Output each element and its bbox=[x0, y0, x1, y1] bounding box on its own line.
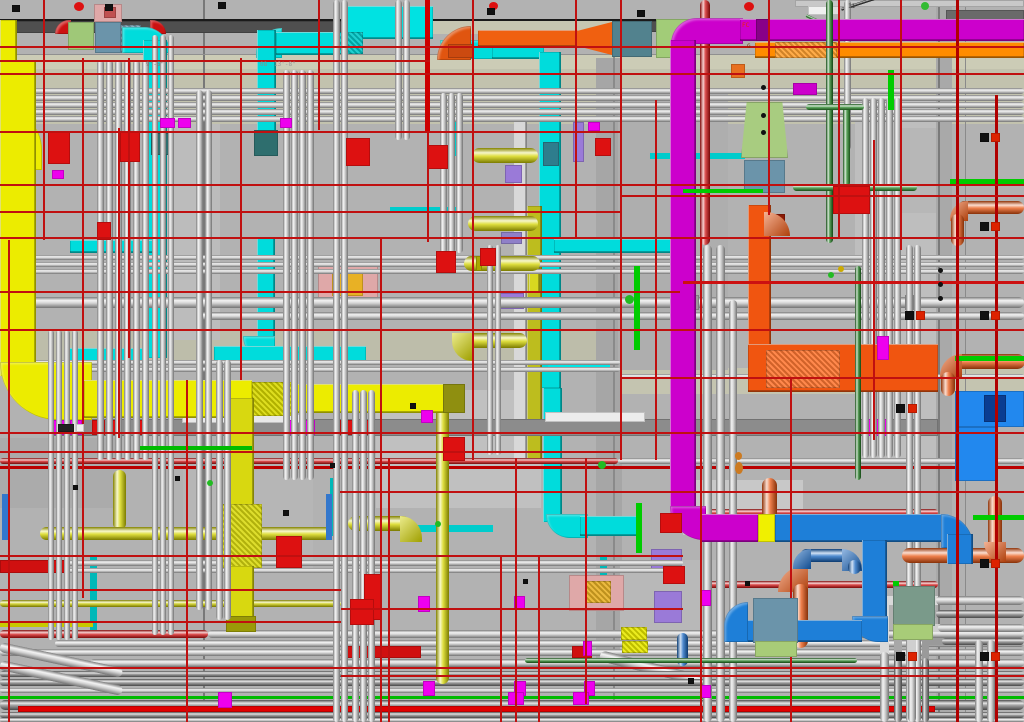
pipe-segment-v[interactable] bbox=[97, 60, 104, 460]
pipe-segment-v[interactable] bbox=[894, 652, 902, 722]
conduit-line-h[interactable] bbox=[0, 432, 1024, 434]
model-block[interactable] bbox=[980, 652, 989, 661]
model-block[interactable] bbox=[916, 311, 925, 320]
conduit-line-v[interactable] bbox=[425, 0, 430, 132]
model-block[interactable] bbox=[505, 165, 522, 183]
model-block[interactable] bbox=[443, 384, 465, 413]
pipe-segment-v[interactable] bbox=[880, 652, 889, 722]
model-block[interactable] bbox=[218, 2, 226, 9]
conduit-line-h[interactable] bbox=[0, 73, 1024, 75]
model-block[interactable] bbox=[755, 641, 797, 657]
pipe-segment-v[interactable] bbox=[196, 90, 203, 610]
model-block[interactable] bbox=[436, 251, 456, 273]
model-block[interactable] bbox=[766, 350, 840, 388]
model-block[interactable] bbox=[896, 404, 905, 413]
conduit-line-h[interactable] bbox=[650, 153, 745, 159]
model-block[interactable] bbox=[991, 652, 1000, 661]
model-block[interactable] bbox=[330, 463, 335, 468]
conduit-line-h[interactable] bbox=[620, 195, 1024, 197]
pipe-segment-h[interactable] bbox=[0, 649, 1024, 656]
duct-segment-h[interactable] bbox=[276, 32, 336, 55]
model-block[interactable] bbox=[753, 598, 798, 643]
model-block[interactable] bbox=[808, 6, 828, 15]
pipe-segment-v[interactable] bbox=[716, 245, 725, 722]
pipe-segment-v[interactable] bbox=[224, 360, 231, 620]
model-block[interactable] bbox=[622, 641, 648, 653]
conduit-line-v[interactable] bbox=[995, 95, 998, 722]
pipe-segment-h[interactable] bbox=[936, 596, 1024, 605]
conduit-line-h[interactable] bbox=[0, 667, 1024, 669]
model-block[interactable] bbox=[793, 83, 817, 95]
model-block[interactable] bbox=[980, 311, 989, 320]
pipe-segment-v[interactable] bbox=[440, 93, 447, 253]
model-block[interactable] bbox=[226, 616, 256, 632]
model-block[interactable] bbox=[731, 64, 745, 78]
model-block[interactable] bbox=[58, 424, 74, 432]
conduit-line-v[interactable] bbox=[472, 0, 474, 460]
model-block[interactable] bbox=[893, 624, 933, 640]
conduit-line-v[interactable] bbox=[500, 556, 502, 722]
model-block[interactable] bbox=[178, 118, 191, 128]
model-block[interactable] bbox=[48, 132, 70, 164]
marker-dot[interactable] bbox=[625, 295, 634, 304]
model-block[interactable] bbox=[52, 170, 64, 179]
marker-dot[interactable] bbox=[761, 113, 766, 118]
model-block[interactable] bbox=[663, 566, 685, 584]
model-block[interactable] bbox=[991, 559, 1000, 568]
pipe-segment-v[interactable] bbox=[848, 560, 861, 574]
model-block[interactable] bbox=[991, 133, 1000, 142]
pipe-segment-v[interactable] bbox=[448, 93, 455, 253]
model-block[interactable] bbox=[905, 311, 914, 320]
pipe-segment-v[interactable] bbox=[395, 0, 402, 140]
conduit-line-h[interactable] bbox=[0, 451, 620, 453]
pipe-segment-h[interactable] bbox=[0, 718, 1024, 722]
conduit-line-v[interactable] bbox=[838, 0, 840, 238]
marker-dot[interactable] bbox=[938, 296, 943, 301]
conduit-line-v[interactable] bbox=[888, 70, 894, 110]
duct-segment-v[interactable] bbox=[257, 238, 275, 342]
conduit-line-v[interactable] bbox=[636, 503, 642, 553]
conduit-line-v[interactable] bbox=[790, 378, 792, 722]
model-block[interactable] bbox=[585, 581, 611, 603]
model-block[interactable] bbox=[12, 5, 20, 12]
model-block[interactable] bbox=[73, 485, 78, 490]
conduit-line-v[interactable] bbox=[700, 238, 702, 722]
model-block[interactable] bbox=[543, 142, 559, 166]
duct-segment-h[interactable] bbox=[580, 516, 642, 536]
marker-dot[interactable] bbox=[938, 282, 943, 287]
model-block[interactable] bbox=[660, 513, 682, 533]
pipe-segment-h[interactable] bbox=[525, 658, 857, 663]
pipe-segment-v[interactable] bbox=[941, 372, 955, 396]
model-block[interactable] bbox=[896, 652, 905, 661]
model-block[interactable] bbox=[346, 138, 370, 166]
pipe-segment-v[interactable] bbox=[403, 0, 410, 140]
conduit-line-h[interactable] bbox=[973, 515, 1024, 520]
model-block[interactable] bbox=[654, 591, 682, 623]
duct-segment-v[interactable] bbox=[228, 398, 254, 520]
pipe-segment-v[interactable] bbox=[495, 245, 501, 455]
conduit-line-h[interactable] bbox=[683, 281, 1024, 284]
conduit-line-h[interactable] bbox=[0, 621, 341, 623]
model-block[interactable] bbox=[76, 424, 84, 432]
model-block[interactable] bbox=[120, 132, 140, 162]
conduit-line-v[interactable] bbox=[634, 266, 640, 350]
pipe-segment-v[interactable] bbox=[843, 106, 850, 186]
conduit-line-v[interactable] bbox=[538, 556, 540, 722]
model-block[interactable] bbox=[595, 138, 611, 156]
conduit-line-h[interactable] bbox=[140, 446, 252, 450]
pipe-segment-v[interactable] bbox=[456, 93, 463, 253]
pipe-segment-h[interactable] bbox=[936, 610, 1024, 618]
pipe-segment-v[interactable] bbox=[216, 360, 223, 620]
pipe-segment-h[interactable] bbox=[938, 624, 1024, 632]
pipe-segment-v[interactable] bbox=[333, 0, 340, 722]
model-block[interactable] bbox=[893, 586, 935, 626]
model-block[interactable] bbox=[443, 437, 465, 461]
pipe-segment-v[interactable] bbox=[855, 266, 861, 480]
duct-segment-v[interactable] bbox=[947, 534, 973, 564]
conduit-line-v[interactable] bbox=[43, 0, 45, 240]
model-block[interactable] bbox=[621, 627, 647, 640]
marker-dot[interactable] bbox=[74, 2, 84, 11]
pipe-segment-v[interactable] bbox=[878, 98, 885, 458]
conduit-line-v[interactable] bbox=[575, 0, 577, 238]
model-block[interactable] bbox=[758, 514, 775, 542]
model-block[interactable] bbox=[410, 403, 416, 409]
conduit-line-v[interactable] bbox=[388, 458, 390, 722]
model-block[interactable] bbox=[588, 122, 600, 131]
marker-dot[interactable] bbox=[838, 266, 844, 272]
conduit-line-h[interactable] bbox=[341, 675, 1024, 677]
model-block[interactable] bbox=[254, 130, 278, 156]
pipe-segment-v[interactable] bbox=[205, 90, 212, 610]
marker-dot[interactable] bbox=[921, 2, 929, 10]
conduit-line-v[interactable] bbox=[318, 0, 320, 130]
duct-tag-fc: FC bbox=[742, 23, 749, 29]
marker-dot[interactable] bbox=[735, 452, 742, 460]
model-block[interactable] bbox=[175, 476, 180, 481]
pipe-segment-v[interactable] bbox=[826, 0, 833, 243]
model-block[interactable] bbox=[612, 21, 652, 57]
model-block[interactable] bbox=[908, 652, 917, 661]
dimension-label-right: 13'-8" bbox=[274, 62, 296, 68]
duct-segment-v[interactable] bbox=[228, 566, 254, 622]
conduit-line-h[interactable] bbox=[0, 237, 1024, 239]
pipe-segment-v[interactable] bbox=[862, 98, 869, 458]
pipe-segment-h[interactable] bbox=[468, 216, 538, 231]
pipe-segment-v[interactable] bbox=[341, 0, 348, 722]
conduit-line-v[interactable] bbox=[240, 58, 242, 380]
surface-patch bbox=[900, 128, 938, 213]
pipe-segment-h[interactable] bbox=[0, 679, 1024, 686]
conduit-line-h[interactable] bbox=[683, 189, 763, 193]
model-block[interactable] bbox=[545, 412, 645, 422]
model-block[interactable] bbox=[980, 559, 989, 568]
marker-dot[interactable] bbox=[207, 480, 213, 486]
duct-segment-v[interactable] bbox=[670, 40, 696, 518]
duct-segment-h[interactable] bbox=[478, 30, 578, 47]
conduit-line-v[interactable] bbox=[515, 458, 517, 722]
pipe-segment-v[interactable] bbox=[113, 470, 126, 530]
marker-dot[interactable] bbox=[744, 2, 754, 11]
model-block[interactable] bbox=[637, 10, 645, 17]
model-block[interactable] bbox=[283, 510, 289, 516]
pipe-segment-h[interactable] bbox=[472, 148, 538, 163]
pipe-segment-v[interactable] bbox=[64, 330, 70, 640]
conduit-line-v[interactable] bbox=[128, 58, 130, 358]
model-block[interactable] bbox=[745, 581, 750, 586]
model-block[interactable] bbox=[276, 536, 302, 568]
duct-segment-v[interactable] bbox=[543, 388, 562, 522]
pipe-segment-v[interactable] bbox=[908, 654, 916, 722]
model-block[interactable] bbox=[428, 145, 448, 169]
conduit-line-v[interactable] bbox=[620, 0, 622, 460]
pipe-segment-h[interactable] bbox=[0, 630, 208, 638]
conduit-line-h[interactable] bbox=[620, 377, 1024, 379]
model-block[interactable] bbox=[991, 222, 1000, 231]
model-block[interactable] bbox=[908, 404, 917, 413]
model-block[interactable] bbox=[991, 311, 1000, 320]
pipe-segment-h[interactable] bbox=[806, 104, 864, 110]
model-block[interactable] bbox=[105, 4, 113, 11]
model-block[interactable] bbox=[955, 427, 997, 481]
conduit-line-v[interactable] bbox=[90, 555, 97, 630]
conduit-line-v[interactable] bbox=[427, 132, 429, 242]
conduit-line-h[interactable] bbox=[0, 131, 620, 133]
model-block[interactable] bbox=[487, 8, 495, 15]
pipe-segment-v[interactable] bbox=[886, 98, 893, 458]
conduit-line-h[interactable] bbox=[340, 491, 1024, 493]
model-block[interactable] bbox=[480, 248, 496, 266]
marker-dot[interactable] bbox=[598, 461, 606, 469]
duct-tag-g: G bbox=[747, 44, 751, 50]
model-block[interactable] bbox=[280, 118, 292, 128]
conduit-line-h[interactable] bbox=[0, 184, 1024, 186]
grid-number-label: 08 bbox=[260, 62, 267, 68]
pipe-segment-v[interactable] bbox=[56, 330, 62, 640]
conduit-line-v[interactable] bbox=[8, 240, 10, 722]
conduit-line-v[interactable] bbox=[380, 238, 382, 722]
conduit-line-v[interactable] bbox=[655, 100, 657, 460]
conduit-line-h[interactable] bbox=[0, 291, 680, 293]
conduit-line-v[interactable] bbox=[613, 55, 615, 722]
conduit-line-v[interactable] bbox=[326, 494, 332, 540]
pipe-segment-v[interactable] bbox=[487, 245, 493, 455]
model-block[interactable] bbox=[877, 336, 889, 360]
conduit-line-h[interactable] bbox=[955, 356, 1024, 361]
duct-segment-h[interactable] bbox=[775, 514, 949, 542]
pipe-segment-h[interactable] bbox=[942, 638, 1024, 645]
marker-dot[interactable] bbox=[435, 521, 441, 527]
marker-dot[interactable] bbox=[828, 272, 834, 278]
model-block[interactable] bbox=[980, 133, 989, 142]
pipe-segment-v[interactable] bbox=[48, 330, 54, 640]
marker-dot[interactable] bbox=[938, 268, 943, 273]
model-block[interactable] bbox=[160, 118, 175, 128]
duct-segment-h[interactable] bbox=[740, 19, 1024, 41]
conduit-line-v[interactable] bbox=[900, 0, 902, 250]
conduit-line-h[interactable] bbox=[0, 329, 1024, 331]
conduit-line-v[interactable] bbox=[768, 0, 770, 215]
model-block[interactable] bbox=[95, 22, 121, 53]
conduit-line-h[interactable] bbox=[0, 555, 683, 557]
duct-segment-h[interactable] bbox=[700, 514, 758, 542]
marker-dot[interactable] bbox=[735, 462, 743, 474]
conduit-line-h[interactable] bbox=[0, 589, 341, 591]
marker-dot[interactable] bbox=[761, 85, 766, 90]
conduit-line-v[interactable] bbox=[118, 128, 120, 438]
grid-tag-11: 11 bbox=[848, 4, 855, 10]
marker-dot[interactable] bbox=[761, 130, 766, 135]
model-block[interactable] bbox=[421, 410, 433, 423]
model-viewport[interactable]: 9'-5"0813'-8"FCG11 bbox=[0, 0, 1024, 722]
dimension-label-left: 9'-5" bbox=[146, 62, 164, 68]
model-block[interactable] bbox=[350, 599, 374, 625]
pipe-segment-v[interactable] bbox=[703, 245, 712, 722]
model-block[interactable] bbox=[423, 681, 435, 696]
conduit-line-h[interactable] bbox=[0, 46, 1024, 48]
pipe-bend[interactable] bbox=[922, 638, 944, 660]
pipe-segment-v[interactable] bbox=[152, 35, 158, 635]
pipe-segment-v[interactable] bbox=[436, 392, 449, 684]
pipe-segment-v[interactable] bbox=[106, 60, 113, 460]
pipe-segment-v[interactable] bbox=[142, 60, 149, 460]
conduit-line-v[interactable] bbox=[956, 0, 959, 722]
model-block[interactable] bbox=[523, 579, 528, 584]
pipe-segment-v[interactable] bbox=[133, 60, 140, 460]
conduit-line-h[interactable] bbox=[0, 60, 430, 62]
conduit-line-h[interactable] bbox=[341, 608, 683, 610]
model-block[interactable] bbox=[688, 678, 694, 684]
conduit-line-v[interactable] bbox=[82, 58, 84, 598]
model-block[interactable] bbox=[218, 692, 232, 708]
conduit-line-h[interactable] bbox=[0, 211, 620, 213]
model-block[interactable] bbox=[980, 222, 989, 231]
